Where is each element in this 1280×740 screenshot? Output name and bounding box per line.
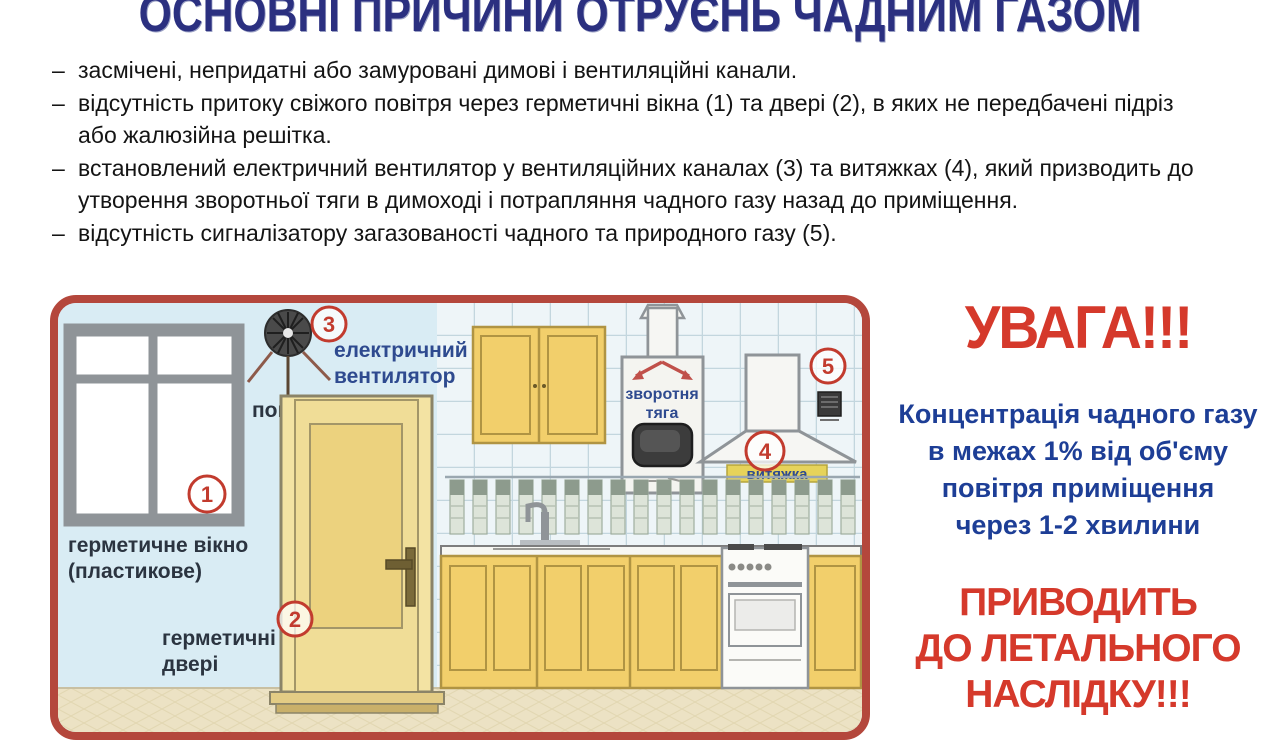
poster-title: ОСНОВНІ ПРИЧИНИ ОТРУЄНЬ ЧАДНИМ ГАЗОМ: [115, 0, 1165, 44]
cause-item-2: – відсутність притоку свіжого повітря че…: [52, 87, 1217, 151]
kitchen-illustration-panel: 1 герметичне вікно (пластикове) 3 електр…: [50, 295, 870, 740]
warning-body-line: повітря приміщення: [880, 470, 1276, 507]
bullet-dash: –: [52, 87, 78, 151]
cause-item-1: – засмічені, непридатні або замуровані д…: [52, 54, 1217, 86]
draft-label-line1: зворотня: [625, 386, 698, 403]
cause-item-3: – встановлений електричний вентилятор у …: [52, 152, 1217, 216]
fan-label-line2: вентилятор: [334, 365, 455, 388]
svg-text:4: 4: [759, 439, 772, 464]
warning-body: Концентрація чадного газу в межах 1% від…: [880, 396, 1276, 544]
warning-result: ПРИВОДИТЬ ДО ЛЕТАЛЬНОГО НАСЛІДКУ!!!: [880, 580, 1276, 718]
bullet-dash: –: [52, 217, 78, 249]
draft-label-line2: тяга: [646, 405, 679, 422]
warning-result-line: НАСЛІДКУ!!!: [880, 672, 1276, 718]
marker-3: 3: [312, 307, 346, 341]
causes-list: – засмічені, непридатні або замуровані д…: [52, 54, 1217, 250]
cause-text: засмічені, непридатні або замуровані дим…: [78, 54, 1217, 86]
bullet-dash: –: [52, 54, 78, 86]
warning-result-line: ДО ЛЕТАЛЬНОГО: [880, 626, 1276, 672]
warning-heading: УВАГА!!!: [890, 293, 1266, 362]
window-label-line2: (пластикове): [68, 560, 202, 583]
utensil-rail: [445, 477, 860, 538]
warning-body-line: Концентрація чадного газу: [880, 396, 1276, 433]
cause-text: відсутність сигналізатору загазованості …: [78, 217, 1217, 249]
door-label-line2: двері: [162, 653, 218, 676]
warning-body-line: через 1-2 хвилини: [880, 507, 1276, 544]
svg-text:5: 5: [822, 354, 834, 379]
cause-text: встановлений електричний вентилятор у ве…: [78, 152, 1217, 216]
kitchen-illustration: 1 герметичне вікно (пластикове) 3 електр…: [58, 303, 862, 732]
cause-item-4: – відсутність сигналізатору загазованост…: [52, 217, 1217, 249]
bullet-dash: –: [52, 152, 78, 216]
warning-body-line: в межах 1% від об'єму: [880, 433, 1276, 470]
svg-text:3: 3: [323, 312, 335, 337]
fan-label-line1: електричний: [334, 339, 468, 362]
door-label-line1: герметичні: [162, 627, 276, 650]
svg-text:1: 1: [201, 482, 213, 507]
warning-result-line: ПРИВОДИТЬ: [880, 580, 1276, 626]
marker-4: 4: [746, 432, 784, 470]
warning-column: УВАГА!!! Концентрація чадного газу в меж…: [880, 293, 1276, 718]
gas-stove: [722, 544, 808, 688]
marker-1: 1: [189, 476, 225, 512]
svg-text:2: 2: [289, 607, 301, 632]
floor: [58, 688, 862, 732]
sealed-door: [270, 396, 444, 713]
window-label-line1: герметичне вікно: [68, 534, 248, 557]
marker-2: 2: [278, 602, 312, 636]
marker-5: 5: [811, 349, 845, 383]
gas-detector: [818, 392, 841, 420]
cause-text: відсутність притоку свіжого повітря чере…: [78, 87, 1217, 151]
wall-cabinet: [473, 327, 605, 443]
